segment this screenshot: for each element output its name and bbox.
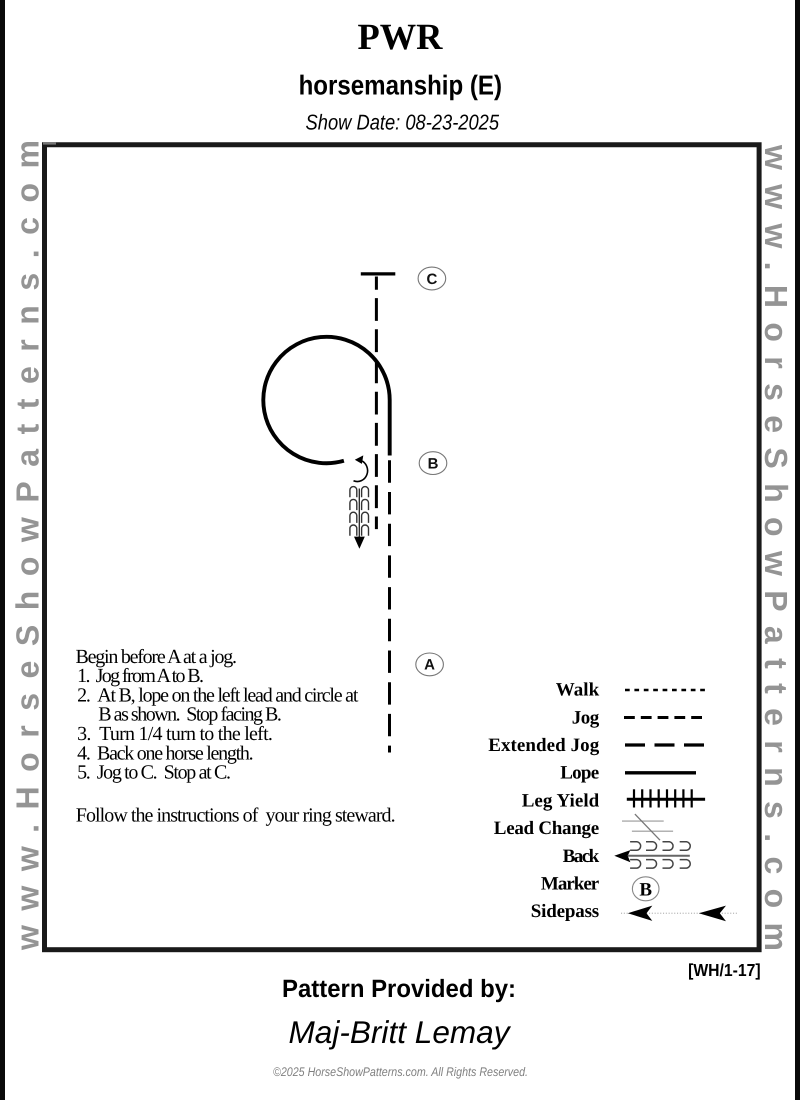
svg-text:B: B <box>428 455 439 472</box>
svg-text:Pattern Provided by:: Pattern Provided by: <box>282 975 516 1003</box>
svg-text:Maj-Britt Lemay: Maj-Britt Lemay <box>289 1014 512 1050</box>
svg-text:Leg Yield: Leg Yield <box>522 790 600 811</box>
svg-text:Lope: Lope <box>560 763 599 784</box>
svg-text:5. Jog to C. Stop at C.: 5. Jog to C. Stop at C. <box>77 762 231 784</box>
svg-text:www.HorseShowPatterns.com: www.HorseShowPatterns.com <box>758 144 794 951</box>
svg-text:Jog: Jog <box>572 707 600 728</box>
svg-text:©2025 HorseShowPatterns.com. A: ©2025 HorseShowPatterns.com. All Rights … <box>273 1065 528 1079</box>
svg-text:Sidepass: Sidepass <box>531 901 600 922</box>
svg-text:Extended Jog: Extended Jog <box>488 735 600 756</box>
svg-text:C: C <box>426 271 437 288</box>
svg-text:B: B <box>639 879 652 900</box>
svg-text:Show Date: 08-23-2025: Show Date: 08-23-2025 <box>306 111 500 135</box>
svg-text:Walk: Walk <box>556 680 600 701</box>
svg-text:Back: Back <box>563 846 600 867</box>
svg-text:Lead Change: Lead Change <box>494 818 599 839</box>
svg-text:[WH/1-17]: [WH/1-17] <box>688 960 761 980</box>
svg-text:PWR: PWR <box>358 17 444 58</box>
svg-text:Marker: Marker <box>541 874 600 895</box>
svg-text:horsemanship (E): horsemanship (E) <box>299 70 502 101</box>
svg-text:www.HorseShowPatterns.com: www.HorseShowPatterns.com <box>10 140 46 951</box>
svg-text:Follow the instructions of yo: Follow the instructions of your ring ste… <box>76 805 396 827</box>
svg-text:A: A <box>424 657 435 674</box>
